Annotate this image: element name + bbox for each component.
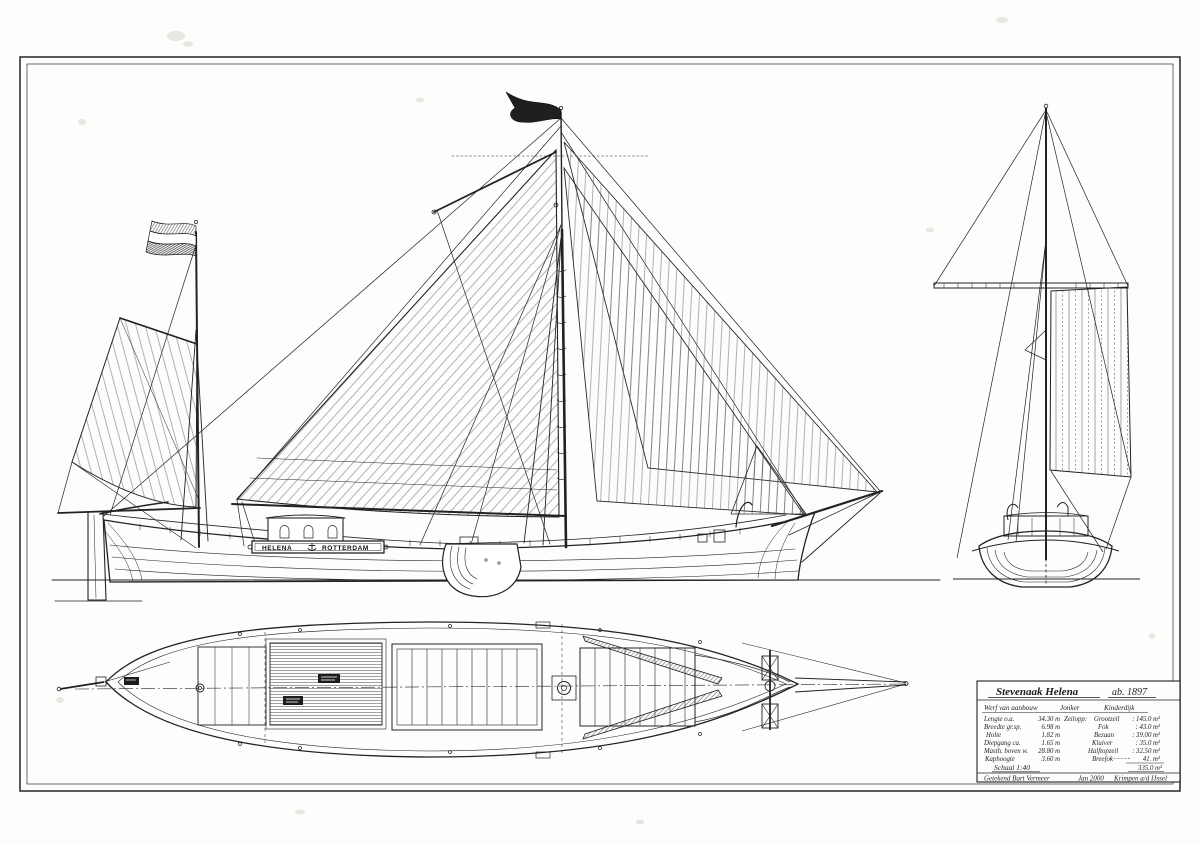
cabin-roof-plan <box>270 643 382 725</box>
main-sheet <box>237 500 256 546</box>
scale-label: Schaal 1:40 <box>994 763 1030 772</box>
main-mast <box>562 230 566 547</box>
bow-stern-view <box>934 104 1140 587</box>
builder-label: Werf van aanbouw <box>984 704 1038 712</box>
title-block: Stevenaak Helena ab. 1897 Werf van aanbo… <box>977 681 1180 783</box>
scanned-ship-plan: HELENA ROTTERDAM <box>0 0 1200 844</box>
sail-value: : 35.0 m² <box>1135 740 1160 747</box>
deck-plan-view <box>57 622 908 758</box>
dimension-label: Diepgang ca. <box>983 740 1021 747</box>
sail-value: : 39.00 m² <box>1132 732 1161 739</box>
name-board: HELENA ROTTERDAM <box>248 541 388 553</box>
stove-pipe <box>1057 503 1068 517</box>
dimension-value: 6.98 m <box>1041 724 1060 731</box>
sail-label: Kluiver <box>1091 740 1113 747</box>
dimension-value: 1.82 m <box>1041 732 1060 739</box>
sail-end-view <box>1050 287 1131 477</box>
sail-label: Bezaan <box>1094 732 1115 739</box>
sail-label: Halftopzeil <box>1087 748 1118 755</box>
deckhouse <box>266 515 345 543</box>
leeboard <box>443 537 521 597</box>
dimension-label: Breedte gr.sp. <box>984 724 1022 731</box>
ship-name-text: HELENA <box>262 545 292 552</box>
ship-port-text: ROTTERDAM <box>322 545 369 552</box>
main-mast-plan <box>558 682 571 695</box>
mast-partners <box>552 676 576 700</box>
dimension-value: 28.80 m <box>1038 748 1060 755</box>
dutch-flag <box>146 220 198 256</box>
side-elevation-view: HELENA ROTTERDAM <box>52 92 940 601</box>
signature-place: Krimpen a/d IJssel <box>1113 775 1167 783</box>
sail-value: : 32.50 m² <box>1132 748 1161 755</box>
dimension-value: 1.65 m <box>1041 740 1060 747</box>
sail-label: Fok <box>1097 724 1110 731</box>
dimension-value: 3.60 m <box>1040 756 1060 763</box>
mainsail <box>237 150 559 517</box>
sail-label: Grootzeil <box>1094 716 1120 723</box>
builder-place: Kinderdijk <box>1103 704 1135 712</box>
signature-date: Jan 2000 <box>1078 775 1104 783</box>
crossed-spar <box>934 283 1128 288</box>
dimension-label: Kaphoogte <box>984 756 1015 763</box>
deck-outline <box>106 622 798 757</box>
plan-year: ab. 1897 <box>1112 687 1148 698</box>
cargo-hatch-fore <box>580 648 695 726</box>
dimension-label: Masth. boven w. <box>983 748 1028 755</box>
sail-value: : 145.0 m² <box>1132 716 1161 723</box>
sail-total: 335.0 m² <box>1137 765 1163 772</box>
plan-title: Stevenaak Helena <box>996 686 1079 698</box>
signature-drawn-by: Getekend Bart Vermeer <box>984 775 1050 783</box>
main-topmast <box>561 112 562 232</box>
sails-header: Zeilopp: <box>1064 716 1087 723</box>
tiller-plan <box>60 682 104 689</box>
leeboard-plan <box>583 690 722 739</box>
masthead-pennant <box>506 92 561 122</box>
sail-value: 41. m² <box>1143 756 1161 763</box>
dimension-label: Holte <box>985 732 1001 739</box>
dimension-value: 34.30 m <box>1037 716 1060 723</box>
dimension-label: Lengte o.a. <box>983 716 1015 723</box>
windlass-plan <box>762 650 778 730</box>
mizzen-sail <box>72 318 198 548</box>
builder-name: Jonker <box>1060 704 1080 712</box>
sail-value: : 43.0 m² <box>1135 724 1160 731</box>
sail-label: Breefok <box>1092 756 1114 763</box>
drawing-canvas: HELENA ROTTERDAM <box>0 0 1200 844</box>
tiller <box>100 502 168 514</box>
